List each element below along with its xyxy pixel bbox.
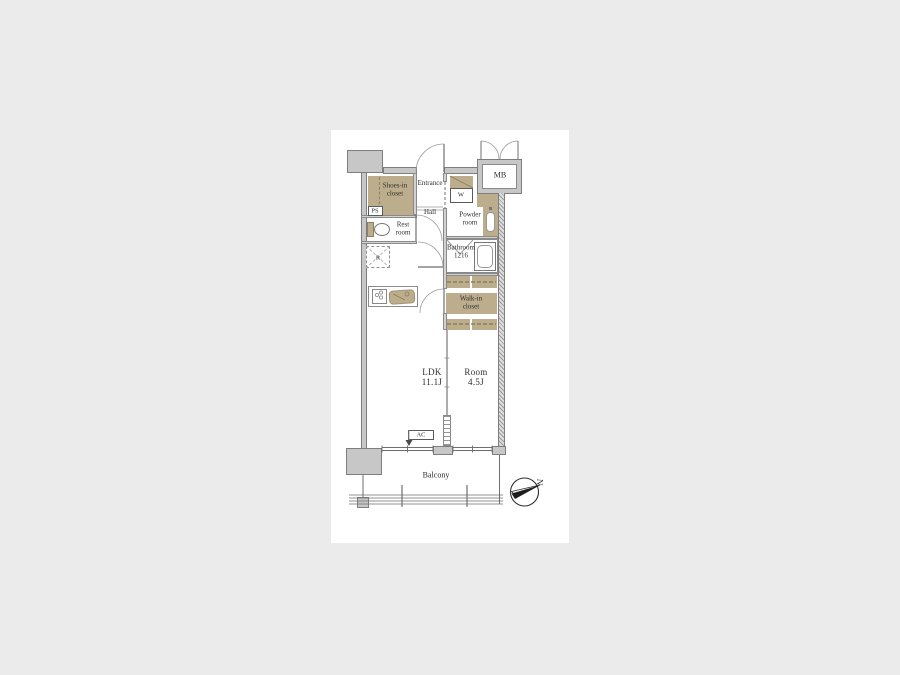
room-label-hall: Hall: [424, 209, 436, 217]
wall-bottom-right: [492, 446, 506, 455]
washbasin-bowl: [486, 212, 495, 232]
wall-top-left-segment: [383, 167, 417, 174]
toilet-tank: [367, 222, 374, 237]
floorplan-panel: N Shoes-in closet Entrance MB W PS Hall …: [331, 130, 569, 543]
room-label-powder-room: Powder room: [459, 211, 480, 226]
wall-pillar-top-left: [347, 150, 383, 173]
room-label-entrance: Entrance: [418, 180, 443, 188]
kitchen-sink: [389, 289, 416, 305]
room-label-ac: AC: [416, 431, 425, 438]
room-label-walk-in-closet: Walk-in closet: [460, 295, 482, 310]
room-label-room: Room 4.5J: [464, 368, 487, 388]
room-label-washer: W: [458, 191, 464, 198]
washer-shelf: [450, 176, 473, 188]
wic-divider-gap: [470, 319, 472, 330]
room-label-meter-box: MB: [494, 172, 506, 181]
room-label-balcony: Balcony: [423, 472, 450, 481]
wall-wic-left: [443, 313, 447, 330]
wall-right-hatched: [498, 193, 505, 446]
wall-entrance-closet: [413, 173, 417, 215]
room-label-rest-room: Rest room: [396, 221, 411, 236]
wall-left: [361, 172, 367, 449]
wall-bottom-middle: [433, 446, 453, 455]
washbasin-faucet: [489, 207, 492, 210]
sliding-partition-stack: [443, 415, 451, 446]
floorplan-page: { "page": { "background_color": "#ebebeb…: [0, 0, 900, 675]
room-label-pipe-space: PS: [371, 207, 378, 214]
wall-hall-powder-upper: [443, 173, 447, 182]
bathtub-inner: [477, 245, 493, 268]
balcony-post-block: [357, 497, 369, 508]
toilet-bowl: [374, 223, 390, 236]
wall-restroom-bottom: [361, 241, 417, 244]
compass-north-arrow: N: [511, 478, 546, 506]
room-label-refrigerator: R: [376, 254, 380, 261]
room-label-bathroom: Bathroom 1216: [447, 244, 475, 259]
wall-top-right-segment: [444, 167, 478, 174]
compass-letter: N: [535, 478, 546, 486]
room-label-ldk: LDK 11.1J: [422, 368, 442, 388]
wall-bath-wic: [446, 273, 498, 276]
stove: [372, 289, 387, 304]
room-label-shoes-closet: Shoes-in closet: [383, 182, 408, 197]
wic-divider-gap: [470, 276, 472, 288]
wall-pillar-bottom-left: [346, 448, 382, 475]
